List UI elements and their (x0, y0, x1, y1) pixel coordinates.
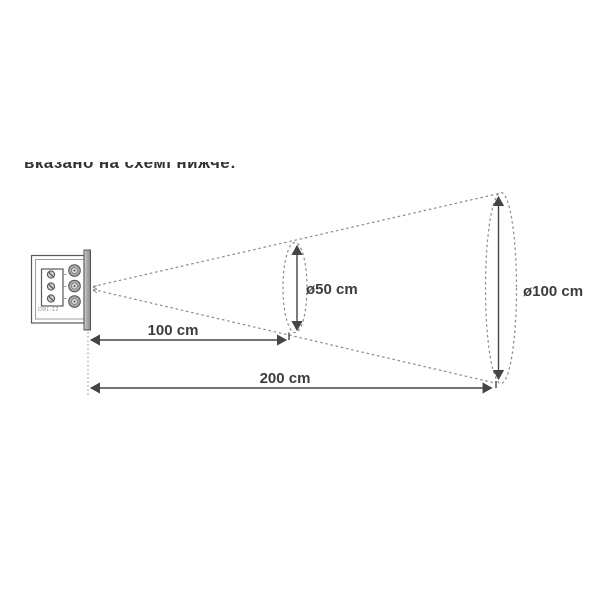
cone-upper-edge (93, 194, 499, 287)
dimension-lines (88, 197, 499, 396)
beam-cone (93, 193, 517, 384)
label-distance-100cm: 100 cm (133, 323, 213, 340)
device-model-label: DRL-12 (38, 307, 59, 313)
device-drawing (32, 250, 98, 330)
beam-cross-section-100cm (486, 193, 517, 384)
label-diameter-50cm: ø50 cm (306, 282, 358, 299)
label-distance-200cm: 200 cm (245, 371, 325, 388)
lens-barrels (69, 265, 81, 308)
label-diameter-100cm: ø100 cm (523, 284, 583, 301)
lens-icon (69, 265, 81, 277)
beam-diagram-canvas (0, 0, 600, 600)
lens-icon (69, 280, 81, 292)
terminal-screws (47, 271, 54, 302)
beam-cross-section-50cm (283, 243, 307, 333)
page: вказано на схемі нижче: (0, 0, 600, 600)
mounting-flange (84, 250, 91, 330)
lens-icon (69, 296, 81, 308)
